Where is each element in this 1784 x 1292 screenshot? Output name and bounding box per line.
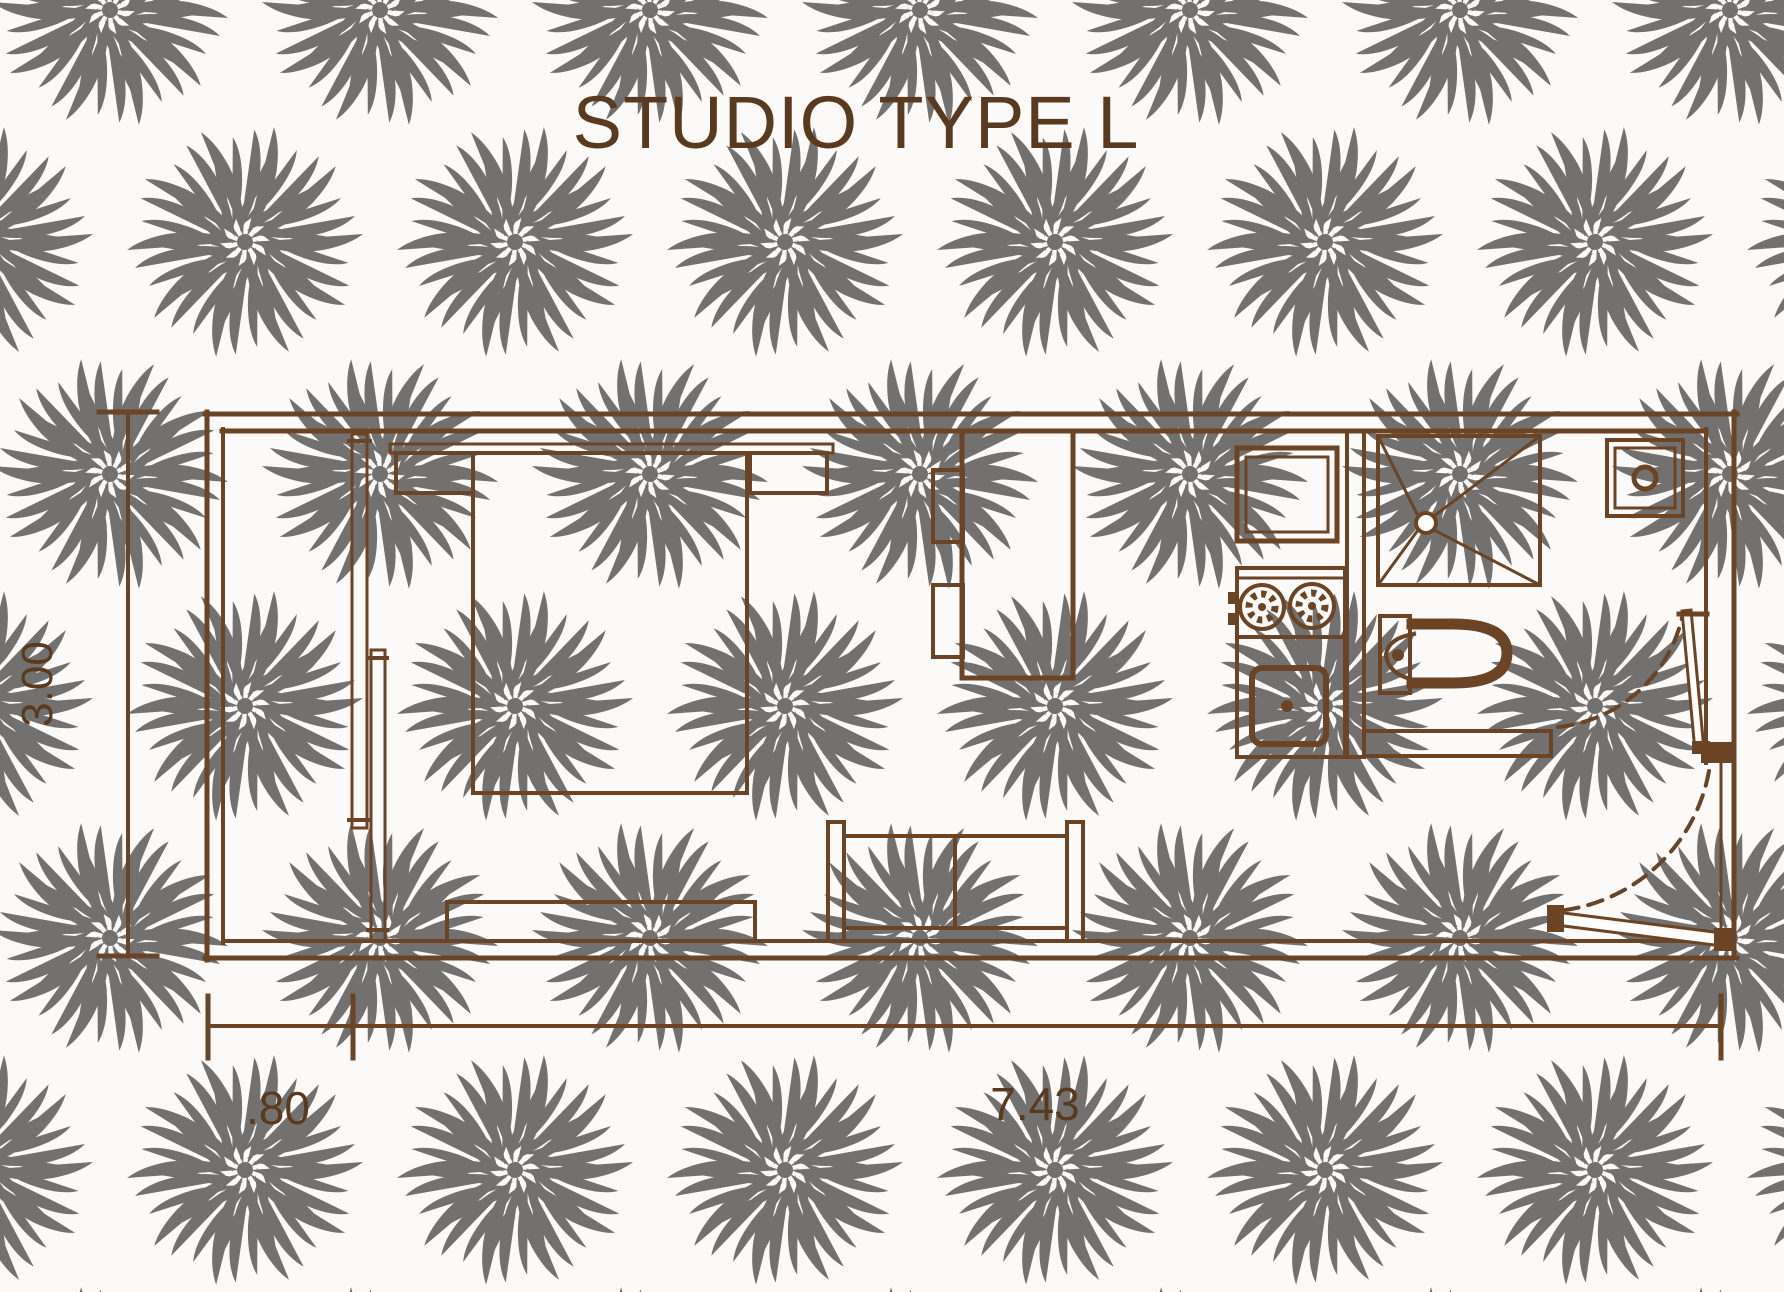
- dimension-height-label: 3.00: [13, 641, 62, 727]
- burner-icon: [1240, 585, 1284, 629]
- burner-icon: [1290, 584, 1334, 628]
- dimension-width-label: 7.43: [990, 1078, 1080, 1130]
- dimension-balcony-label: .80: [246, 1082, 310, 1134]
- plan-title: STUDIO TYPE L: [573, 81, 1140, 164]
- toilet: [1380, 616, 1507, 693]
- shower-drain-icon: [1416, 513, 1436, 533]
- stool: [933, 585, 963, 657]
- floor-plan: STUDIO TYPE L: [0, 0, 1784, 1292]
